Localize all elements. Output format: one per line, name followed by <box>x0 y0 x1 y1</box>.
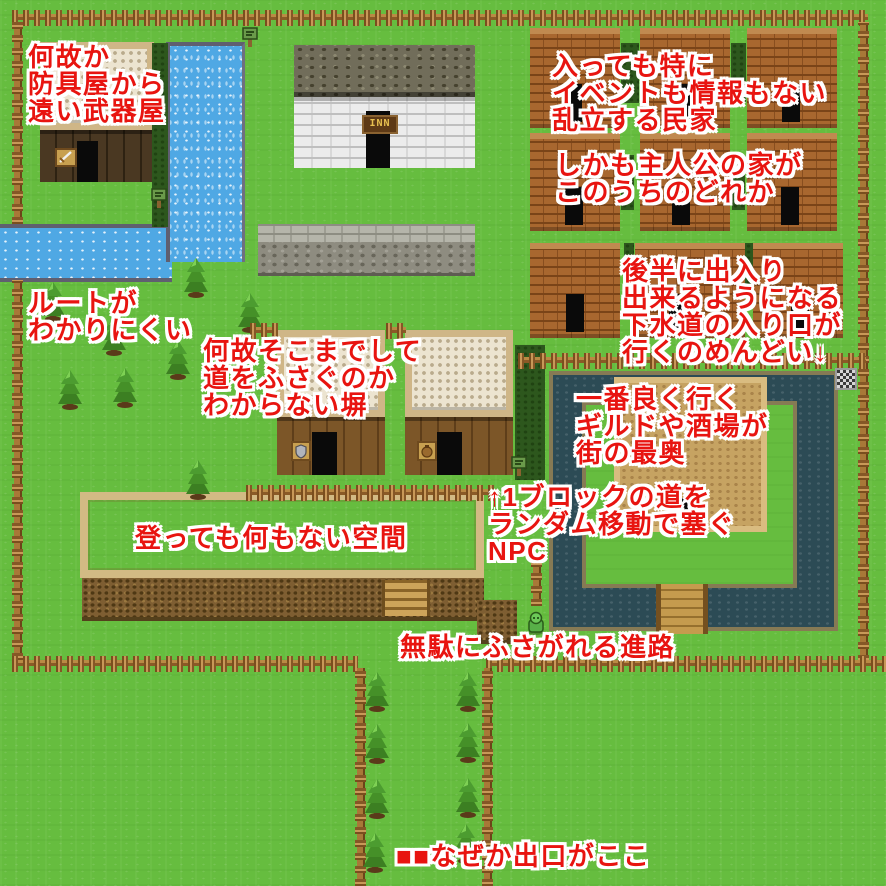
bag-sign-icon[interactable] <box>418 442 436 460</box>
item-shop-door[interactable] <box>437 432 462 475</box>
stone-wall-face <box>258 242 475 276</box>
town-map: INN <box>0 0 886 886</box>
tree-icon <box>113 368 137 408</box>
weapon-shop-door[interactable] <box>77 141 98 182</box>
fence-road-blocker <box>531 560 542 606</box>
fence-bottom-left <box>12 656 358 672</box>
canal-water <box>0 224 172 282</box>
sign-post[interactable] <box>151 188 167 209</box>
annotation-weapon-shop-far: 何故か 防具屋から 遠い武器屋 <box>28 44 166 125</box>
tree-icon <box>456 723 480 763</box>
annotation-pointless-wall: 何故そこまでして 道をふさぐのか わからない塀 <box>203 338 422 419</box>
moat-bridge[interactable] <box>656 584 708 634</box>
annotation-sewer-entrance: 後半に出入り 出来るようになる 下水道の入り口が 行くのめんどい↓ <box>622 258 842 366</box>
annotation-protagonist-house: しかも主人公の家が このうちのどれか <box>555 152 803 206</box>
tree-icon <box>365 724 389 764</box>
tree-icon <box>365 779 389 819</box>
tree-icon <box>186 460 210 500</box>
annotation-empty-space: 登っても何もない空間 <box>135 525 407 552</box>
tree-icon <box>166 340 190 380</box>
annotation-blocked-path: 無駄にふさがれる進路 <box>400 634 675 661</box>
sign-post[interactable] <box>242 27 258 48</box>
tree-icon <box>58 370 82 410</box>
tree-icon <box>363 833 387 873</box>
annotation-exit-here: ■■なぜか出口がここ <box>396 843 650 870</box>
armor-shop-door[interactable] <box>312 432 337 475</box>
sign-post[interactable] <box>511 456 527 477</box>
fence-left-upper <box>12 22 23 224</box>
tree-icon <box>365 672 389 712</box>
fence-right <box>858 22 869 662</box>
inn-roof <box>294 45 475 97</box>
annotation-guild-far: 一番良く行く ギルドや酒場が 街の最奥 <box>576 386 769 467</box>
house-door[interactable] <box>566 294 584 332</box>
river-water <box>166 42 245 262</box>
sewer-grate-icon[interactable] <box>835 368 857 390</box>
annotation-route-unclear: ルートが わかりにくい <box>28 290 192 344</box>
sword-sign-icon[interactable] <box>56 149 76 166</box>
tree-icon <box>456 778 480 818</box>
annotation-npc-blocker: ↑1ブロックの道を ランダム移動で塞ぐ NPC <box>488 484 736 565</box>
fence-top <box>12 10 868 26</box>
tree-icon <box>456 672 480 712</box>
fence-shops <box>246 485 498 501</box>
fence-left-lower <box>12 280 23 660</box>
annotation-houses-no-events: 入っても特に イベントも情報もない 乱立する民家 <box>552 53 827 134</box>
shield-sign-icon[interactable] <box>292 442 310 460</box>
stone-wall-top <box>258 224 475 242</box>
inn-sign: INN <box>362 115 398 134</box>
cliff-ladder[interactable] <box>382 580 430 616</box>
